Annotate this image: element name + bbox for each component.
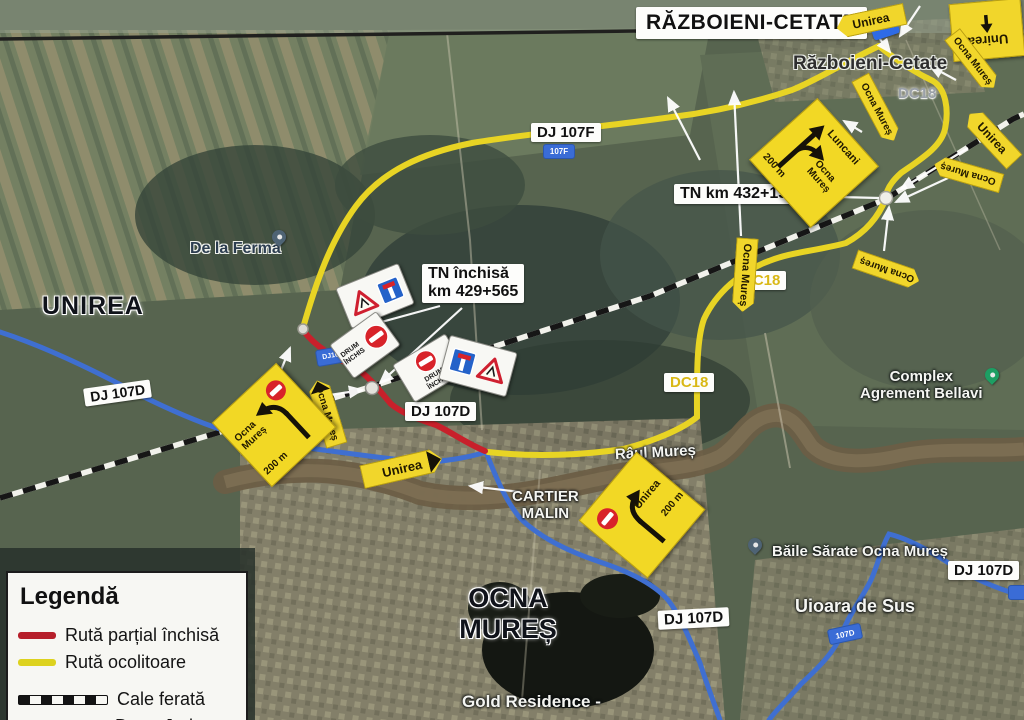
railway-swatch [18, 695, 108, 705]
de-la-ferma-label: De la Ferma [190, 240, 281, 258]
tn-closed-line1: TN închisă [428, 265, 518, 283]
dc18-label-2: DC18 [664, 373, 714, 392]
legend-railway-label: Cale ferată [117, 689, 205, 710]
dead-end-icon [375, 275, 405, 305]
legend-county-road-label: Drum Județean [115, 716, 238, 720]
unirea-sign-top-label: Unirea [851, 10, 890, 31]
razboieni-place-label: Războieni-Cetate [793, 53, 947, 75]
complex-line1: Complex [860, 368, 983, 385]
dj107d-label-south: DJ 107D [658, 607, 730, 630]
drum-inchis-text: DRUM ÎNCHIS [339, 341, 367, 367]
legend-item-closed: Rută parțial închisă [18, 625, 236, 646]
gold-residence-label: Gold Residence - [462, 692, 601, 712]
unirea-town-label: UNIREA [42, 292, 144, 321]
crossing-dot-west [366, 382, 379, 395]
ocna-sign-vertical-label: Ocna Mureș [737, 243, 753, 307]
road-shield-partial [1008, 585, 1024, 600]
cartier-line1: CARTIER [512, 488, 579, 505]
legend-item-detour: Rută ocolitoare [18, 652, 236, 673]
dj107d-label-center: DJ 107D [405, 402, 476, 421]
baile-sarate-label: Băile Sărate Ocna Mureș [772, 543, 948, 560]
legend-closed-label: Rută parțial închisă [65, 625, 219, 646]
dead-end-icon [447, 347, 476, 376]
crossing-dot-east [880, 192, 893, 205]
ocna-line2: MUREȘ [446, 614, 570, 645]
complex-agrement-label: Complex Agrement Bellavi [860, 368, 983, 402]
tn-closed-line2: km 429+565 [428, 283, 518, 301]
dj107f-label: DJ 107F [531, 123, 601, 142]
ocna-mures-town-label: OCNA MUREȘ [446, 583, 570, 645]
detour-route-swatch [18, 659, 56, 666]
detour-map[interactable]: RĂZBOIENI-CETATE Războieni-Cetate DJ 107… [0, 0, 1024, 720]
complex-line2: Agrement Bellavi [860, 385, 983, 402]
road-shield-107f: 107F [543, 144, 575, 159]
legend-item-railway: Cale ferată [18, 689, 236, 710]
legend-detour-label: Rută ocolitoare [65, 652, 186, 673]
dc18-label-3: DC18 [898, 85, 936, 102]
ocna-line1: OCNA [446, 583, 570, 614]
cartier-line2: MALIN [512, 505, 579, 522]
legend-title: Legendă [20, 583, 236, 611]
uioara-de-sus-label: Uioara de Sus [795, 596, 915, 617]
unirea-sign-river-label: Unirea [381, 456, 424, 480]
legend: Legendă Rută parțial închisă Rută ocolit… [6, 571, 248, 720]
razboieni-title-box: RĂZBOIENI-CETATE [636, 7, 867, 39]
warning-triangle-icon [474, 353, 509, 386]
down-arrow-icon [978, 12, 996, 33]
dj107d-label-east: DJ 107D [948, 561, 1019, 580]
legend-item-county-road: DJ 107D Drum Județean [18, 716, 236, 720]
tn-closed-crossing-label: TN închisă km 429+565 [422, 264, 524, 303]
diamond-west-200m-label: 200 m [262, 450, 290, 477]
cartier-label: CARTIER MALIN [512, 488, 579, 522]
diamond-luncani-ocna-label: Ocna Mureș [804, 159, 846, 203]
closed-route-swatch [18, 632, 56, 639]
junction-dot [298, 324, 308, 334]
